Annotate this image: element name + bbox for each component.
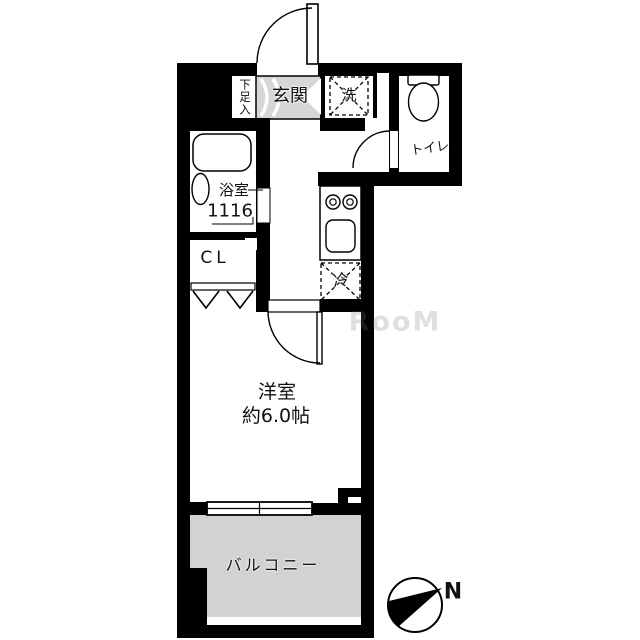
room-door-swing-arc bbox=[268, 311, 320, 363]
watermark: RooM bbox=[349, 307, 442, 338]
floor-plan: RooM 下足入 玄関 洗 トイレ 浴室 1116 CL 冷 洋室 約6.0帖 … bbox=[0, 0, 640, 640]
label-refrigerator: 冷 bbox=[332, 272, 350, 291]
room-door-opening bbox=[268, 300, 320, 312]
wall-under-entrance bbox=[190, 118, 270, 131]
wall-right-upper bbox=[449, 63, 462, 186]
bathtub bbox=[193, 134, 251, 171]
toilet-bowl bbox=[409, 83, 439, 121]
label-room: 洋室 bbox=[258, 383, 296, 403]
label-balcony: バルコニー bbox=[226, 558, 321, 575]
hall-to-toilet bbox=[365, 118, 389, 131]
stove-burner-right-inner bbox=[347, 199, 353, 205]
closet-wall-notch bbox=[245, 238, 257, 250]
wall-balcony-step bbox=[177, 568, 207, 625]
label-compass-north: N bbox=[444, 580, 462, 603]
label-entrance: 玄関 bbox=[272, 88, 308, 107]
label-bathroom: 浴室 bbox=[219, 183, 249, 199]
wall-under-washer bbox=[321, 118, 365, 131]
closet-folding-door-left bbox=[193, 291, 219, 308]
room-door-leaf bbox=[317, 312, 322, 364]
closet-door-track bbox=[191, 283, 255, 290]
wall-left bbox=[177, 63, 190, 638]
floor-plan-drawing bbox=[0, 0, 640, 640]
label-bathroom-size: 1116 bbox=[207, 203, 253, 222]
balcony-edge-strip bbox=[207, 617, 361, 625]
wall-right-of-washer bbox=[373, 73, 377, 118]
stove-burner-left-inner bbox=[330, 199, 336, 205]
closet-folding-door-right bbox=[227, 291, 253, 308]
niche-beside-washer bbox=[377, 73, 389, 118]
pillar-notch bbox=[348, 497, 361, 503]
compass bbox=[388, 578, 442, 632]
toilet-door-opening bbox=[390, 131, 398, 168]
label-shoe-cabinet: 下足入 bbox=[239, 78, 251, 116]
label-washer: 洗 bbox=[341, 88, 356, 104]
label-closet: CL bbox=[200, 250, 229, 268]
wall-right-lower bbox=[361, 172, 374, 638]
wall-window-left bbox=[190, 502, 207, 515]
bathroom-door-opening bbox=[257, 188, 270, 223]
entrance-door-swing-arc bbox=[257, 8, 312, 63]
wall-under-toilet bbox=[318, 172, 462, 186]
balcony-window bbox=[207, 502, 312, 515]
wall-bottom bbox=[177, 625, 374, 638]
kitchen-sink bbox=[326, 220, 355, 252]
label-room-size: 約6.0帖 bbox=[242, 407, 310, 427]
entrance-door-leaf bbox=[307, 4, 318, 64]
toilet-door-swing-arc bbox=[353, 131, 390, 168]
wall-bathroom-right bbox=[256, 131, 270, 240]
wall-window-right bbox=[312, 503, 361, 515]
